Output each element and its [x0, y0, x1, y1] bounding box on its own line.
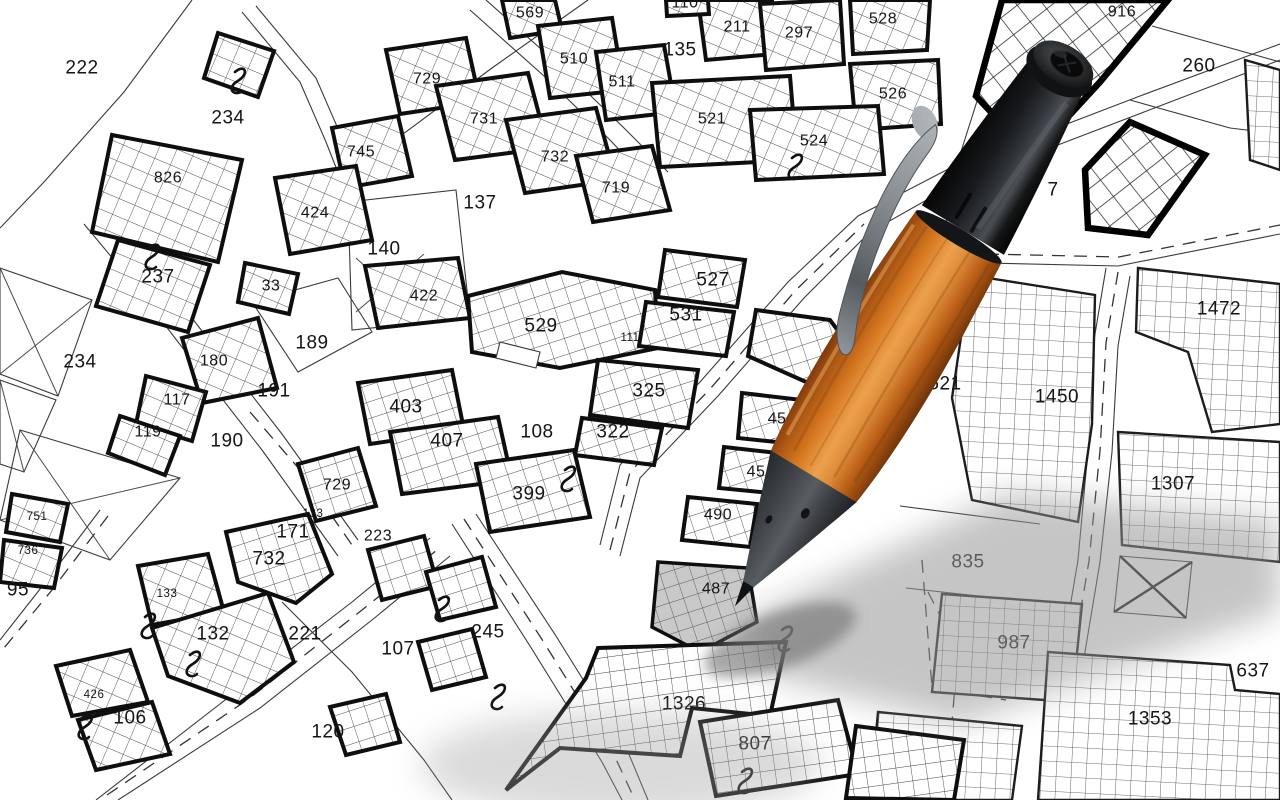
parcel-label-729: 729	[413, 71, 441, 88]
parcel-label-107: 107	[381, 639, 414, 660]
parcel-label-1450: 1450	[1035, 387, 1079, 408]
parcel-label-407: 407	[430, 431, 463, 452]
parcel-label-191: 191	[257, 381, 290, 402]
parcel-label-637: 637	[1236, 661, 1269, 682]
parcel-label-120: 120	[311, 722, 344, 743]
parcel-label-189: 189	[295, 333, 328, 354]
parcel-label-521: 521	[698, 111, 726, 128]
parcel-label-111: 111	[621, 332, 640, 344]
parcel-label-731: 731	[470, 111, 498, 128]
parcel-label-403: 403	[389, 397, 422, 418]
parcel-label-487: 487	[702, 581, 730, 598]
parcel-label-260: 260	[1182, 56, 1215, 77]
parcel-label-222: 222	[65, 58, 98, 79]
parcel-shape	[846, 726, 964, 800]
parcel-label-117: 117	[163, 392, 190, 409]
parcel-label-424: 424	[301, 205, 329, 222]
parcel-label-33: 33	[262, 278, 281, 295]
parcel-label-529: 529	[524, 316, 557, 337]
parcel-label-135: 135	[663, 40, 696, 61]
parcel-label-736: 736	[18, 545, 39, 557]
parcel-label-221: 221	[288, 624, 321, 645]
parcel-label-45: 45	[747, 464, 766, 481]
parcel-label-322: 322	[596, 422, 629, 443]
parcel-shape	[1245, 60, 1280, 170]
parcel-label-190: 190	[210, 431, 243, 452]
parcel-label-729: 729	[323, 477, 351, 494]
parcel-label-1326: 1326	[662, 694, 706, 715]
parcel-label-426: 426	[84, 689, 105, 701]
parcel-label-171: 171	[276, 522, 309, 543]
parcel-label-916: 916	[1108, 4, 1136, 21]
parcel-label-119: 119	[134, 424, 161, 441]
parcel-label-245: 245	[471, 622, 504, 643]
parcel-label-234: 234	[211, 108, 244, 129]
parcel-label-132: 132	[196, 624, 229, 645]
parcel-label-110: 110	[671, 0, 698, 12]
parcel-label-745: 745	[347, 144, 375, 161]
parcel-label-223: 223	[364, 528, 392, 545]
parcel-label-133: 133	[157, 588, 178, 600]
parcel-label-526: 526	[879, 86, 907, 103]
parcel-label-237: 237	[141, 267, 174, 288]
parcel-label-133: 133	[303, 508, 324, 520]
parcel-label-826: 826	[154, 170, 182, 187]
parcel-label-527: 527	[696, 270, 729, 291]
parcel-label-719: 719	[602, 180, 630, 197]
parcel-label-422: 422	[410, 288, 438, 305]
parcel-label-569: 569	[516, 5, 544, 22]
parcel-label-95: 95	[7, 580, 29, 601]
parcel-label-106: 106	[113, 708, 146, 729]
parcel-label-108: 108	[520, 422, 553, 443]
parcel-label-732: 732	[252, 549, 285, 570]
parcel-label-1353: 1353	[1128, 709, 1172, 730]
parcel-label-751: 751	[27, 511, 48, 523]
parcel-label-511: 511	[608, 74, 635, 91]
parcel-label-7: 7	[1047, 180, 1058, 201]
parcel-label-732: 732	[541, 149, 569, 166]
parcel-label-180: 180	[200, 353, 228, 370]
parcel-label-325: 325	[632, 381, 665, 402]
parcel-label-1307: 1307	[1151, 474, 1195, 495]
parcel-label-140: 140	[367, 239, 400, 260]
parcel-label-510: 510	[560, 51, 588, 68]
parcel-label-211: 211	[723, 19, 750, 36]
parcel-label-297: 297	[785, 25, 813, 42]
parcel-label-524: 524	[800, 133, 828, 150]
parcel-label-490: 490	[704, 507, 732, 524]
cadastral-map: 2222348267457297317327191374241404222373…	[0, 0, 1280, 800]
parcel-label-399: 399	[512, 484, 545, 505]
parcel-label-531: 531	[669, 305, 702, 326]
parcel-label-528: 528	[869, 11, 897, 28]
parcel-label-137: 137	[463, 193, 496, 214]
cadastral-map-screenshot: 2222348267457297317327191374241404222373…	[0, 0, 1280, 800]
parcel-shape	[368, 536, 438, 600]
parcel-label-1472: 1472	[1197, 299, 1241, 320]
parcel-label-234: 234	[63, 352, 96, 373]
